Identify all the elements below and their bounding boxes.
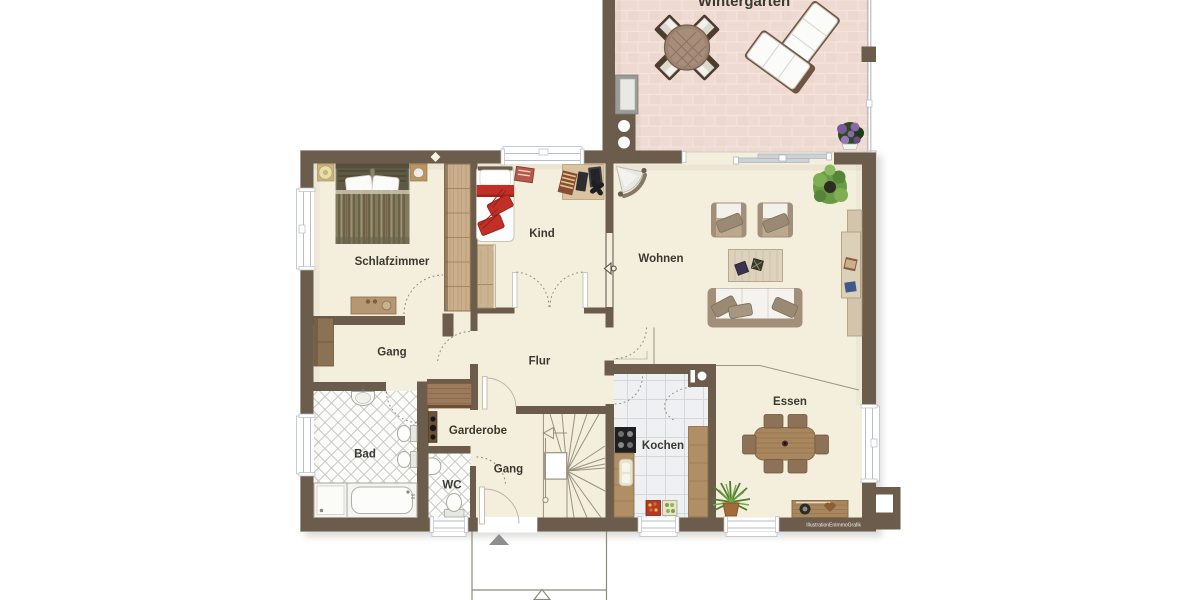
svg-text:IllustrationEnImmoGrafik: IllustrationEnImmoGrafik [806,523,861,529]
svg-text:Kind: Kind [529,228,555,240]
svg-text:Kochen: Kochen [642,440,684,452]
svg-text:Wohnen: Wohnen [638,253,683,265]
svg-text:Schlafzimmer: Schlafzimmer [355,256,430,268]
svg-text:Gang: Gang [377,347,406,359]
svg-text:Flur: Flur [529,356,551,368]
svg-text:Wintergarten: Wintergarten [698,0,790,10]
svg-text:WC: WC [442,480,461,492]
svg-text:Bad: Bad [354,449,376,461]
svg-text:Essen: Essen [773,396,807,408]
svg-text:Gang: Gang [494,464,523,476]
svg-text:Garderobe: Garderobe [449,425,507,437]
